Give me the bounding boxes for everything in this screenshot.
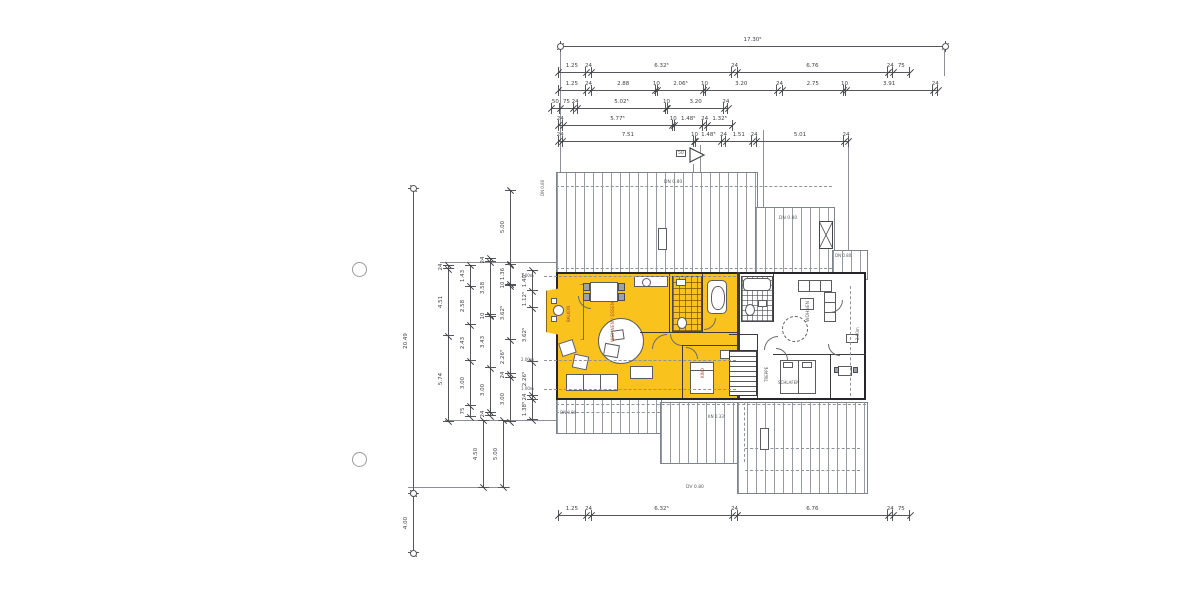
dim-end-circle xyxy=(410,490,417,497)
dim-line xyxy=(413,493,414,553)
dim-label: 5.00 xyxy=(500,221,506,233)
dim-label: 1.43 xyxy=(460,270,466,282)
dim-label: 2.06⁵ xyxy=(673,81,687,87)
dim-label: 24 xyxy=(480,256,486,263)
dim-label: 3.43 xyxy=(480,336,486,348)
dimension-chains: 17.30⁵1.25246.32⁵246.7624751.25242.88102… xyxy=(0,0,1200,600)
dim-label: 1.40⁵ xyxy=(522,273,528,287)
dim-label: 3.00 xyxy=(460,377,466,389)
dim-label: 1.12⁵ xyxy=(522,292,528,306)
dim-label: 5.77⁵ xyxy=(610,116,624,122)
dim-line xyxy=(558,141,848,142)
dim-label: 4.00 xyxy=(403,517,409,529)
dim-line xyxy=(490,258,491,416)
dim-label: 2.26⁵ xyxy=(522,371,528,385)
dim-label: 7.51 xyxy=(622,132,634,138)
dim-label: 1.25 xyxy=(566,81,578,87)
dim-label: 75 xyxy=(898,63,905,69)
dim-label: 24 xyxy=(438,263,444,270)
dim-label: 2.88 xyxy=(617,81,629,87)
dim-label: 4.50 xyxy=(473,447,479,459)
floor-plan-scan: 50 DN 0.80 DN 0.80 DN 0.80 DN 0.80 KN 0.… xyxy=(0,0,1200,600)
dim-label: 1.51 xyxy=(733,132,745,138)
dim-label: 17.30⁵ xyxy=(744,37,762,43)
dim-label: 75 xyxy=(460,408,466,415)
dim-label: 2.43 xyxy=(460,337,466,349)
dim-label: 3.91 xyxy=(883,81,895,87)
dim-end-circle xyxy=(410,550,417,557)
dim-label: 24 xyxy=(500,372,506,379)
dim-label: 50 xyxy=(552,99,559,105)
dim-label: 1.36 xyxy=(500,268,506,280)
dim-label: 4.51 xyxy=(438,296,444,308)
dim-label: 5.01 xyxy=(794,132,806,138)
dim-label: 6.76 xyxy=(806,63,818,69)
dim-label: 2.58 xyxy=(460,299,466,311)
dim-label: 5.00 xyxy=(493,447,499,459)
dim-label: 75 xyxy=(563,99,570,105)
dim-label: 3.00 xyxy=(500,393,506,405)
dim-label: 1.25 xyxy=(566,63,578,69)
dim-end-circle xyxy=(942,43,949,50)
dim-label: 3.58 xyxy=(480,282,486,294)
dim-slash-tick xyxy=(729,122,736,129)
dim-label: 3.20 xyxy=(735,81,747,87)
dim-label: 3.62⁵ xyxy=(522,327,528,341)
dim-line xyxy=(558,515,910,516)
dim-label: 1.38⁵ xyxy=(522,402,528,416)
dim-label: 24 xyxy=(522,394,528,401)
dim-label: 3.20 xyxy=(689,99,701,105)
dim-label: 2.75 xyxy=(807,81,819,87)
dim-label: 6.32⁵ xyxy=(654,63,668,69)
dim-label: 1.32⁵ xyxy=(712,116,726,122)
dim-label: 6.32⁵ xyxy=(654,506,668,512)
dim-label: 75 xyxy=(898,506,905,512)
dim-label: 6.76 xyxy=(806,506,818,512)
dim-line xyxy=(558,90,938,91)
dim-label: 3.62⁵ xyxy=(500,306,506,320)
dim-line xyxy=(483,420,484,487)
dim-label: 20.49 xyxy=(403,333,409,349)
dim-label: 2.26⁵ xyxy=(500,349,506,363)
dim-label: 1.48⁵ xyxy=(681,116,695,122)
dim-end-circle xyxy=(557,43,564,50)
dim-label: 1.25 xyxy=(566,506,578,512)
dim-label: 5.74 xyxy=(438,372,444,384)
dim-label: 3.00 xyxy=(480,384,486,396)
dim-line xyxy=(503,420,504,487)
dim-line xyxy=(413,188,414,493)
dim-line xyxy=(560,46,945,47)
dim-end-circle xyxy=(410,185,417,192)
dim-line xyxy=(448,265,449,421)
dim-line xyxy=(558,72,910,73)
dim-line xyxy=(510,190,511,265)
dim-label: 5.02⁵ xyxy=(614,99,628,105)
dim-label: 1.48⁵ xyxy=(701,132,715,138)
